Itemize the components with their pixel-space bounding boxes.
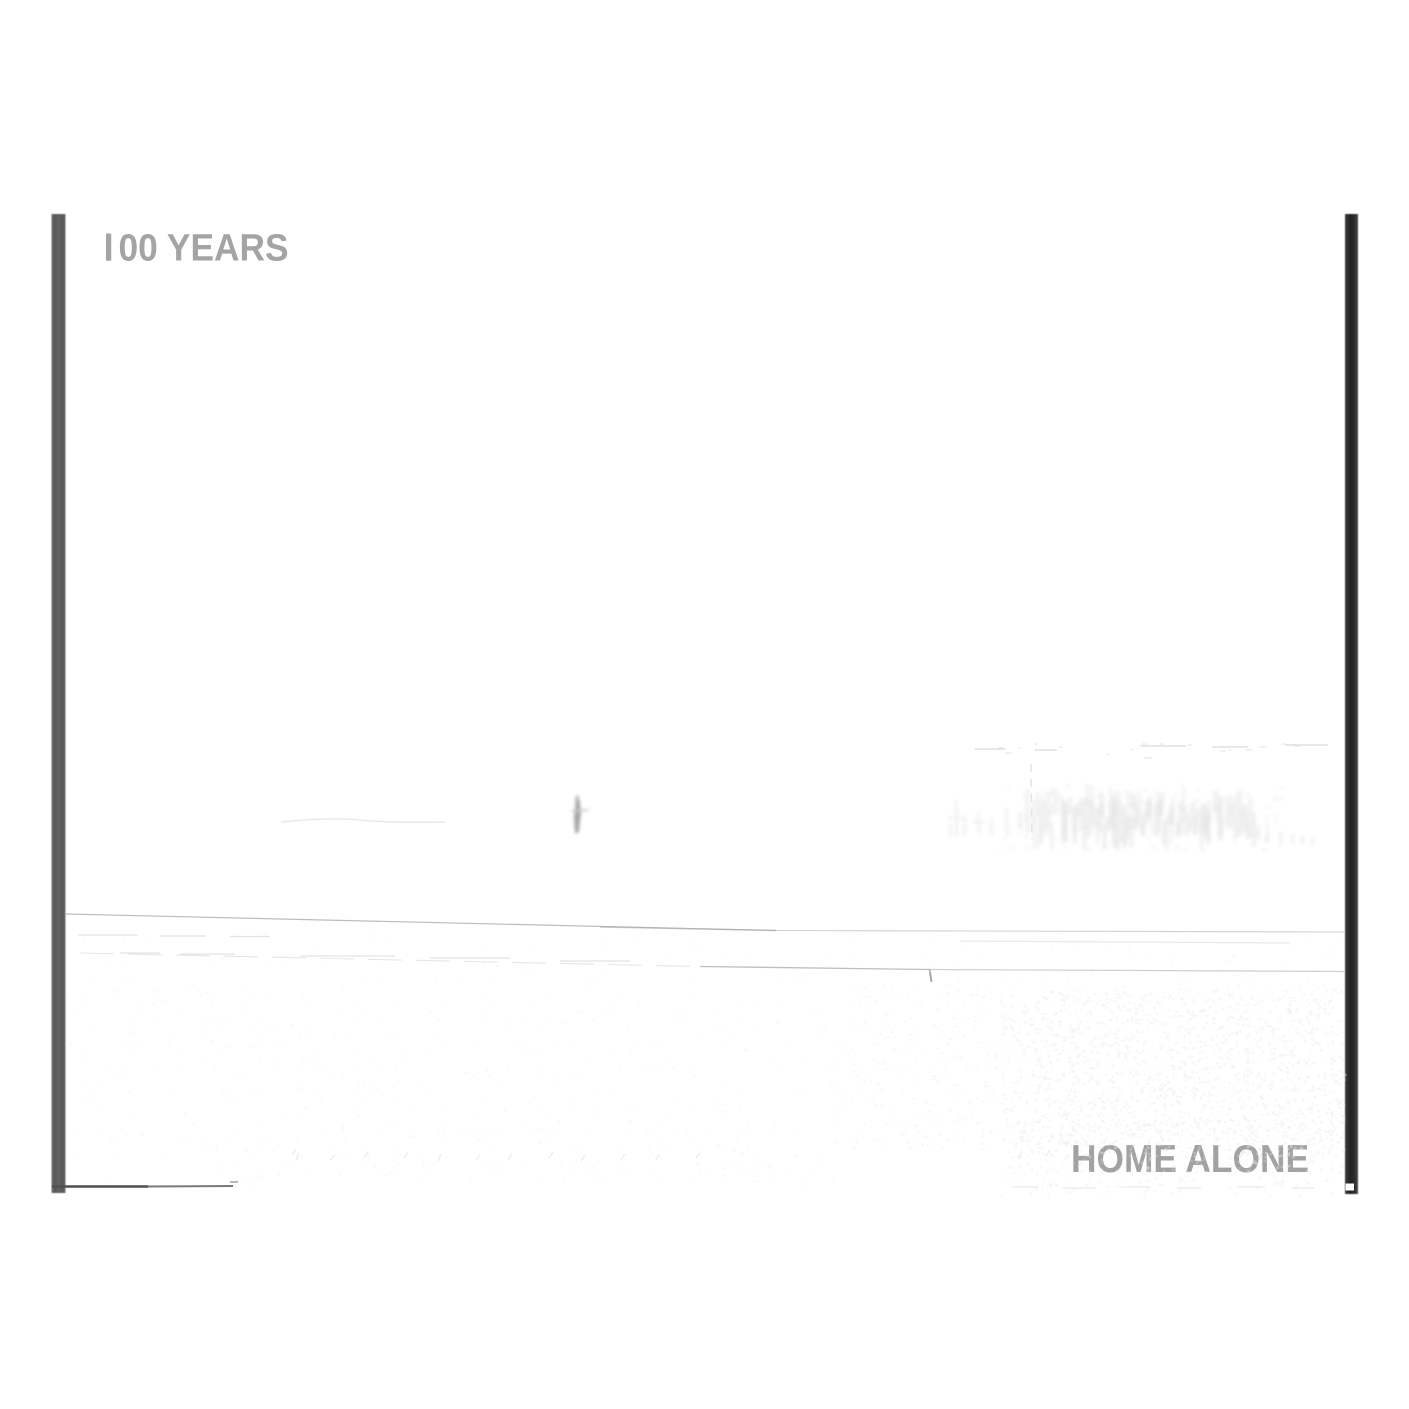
svg-text:00 YEARS: 00 YEARS [119,228,289,270]
svg-text:HOME ALONE: HOME ALONE [1071,1138,1309,1181]
